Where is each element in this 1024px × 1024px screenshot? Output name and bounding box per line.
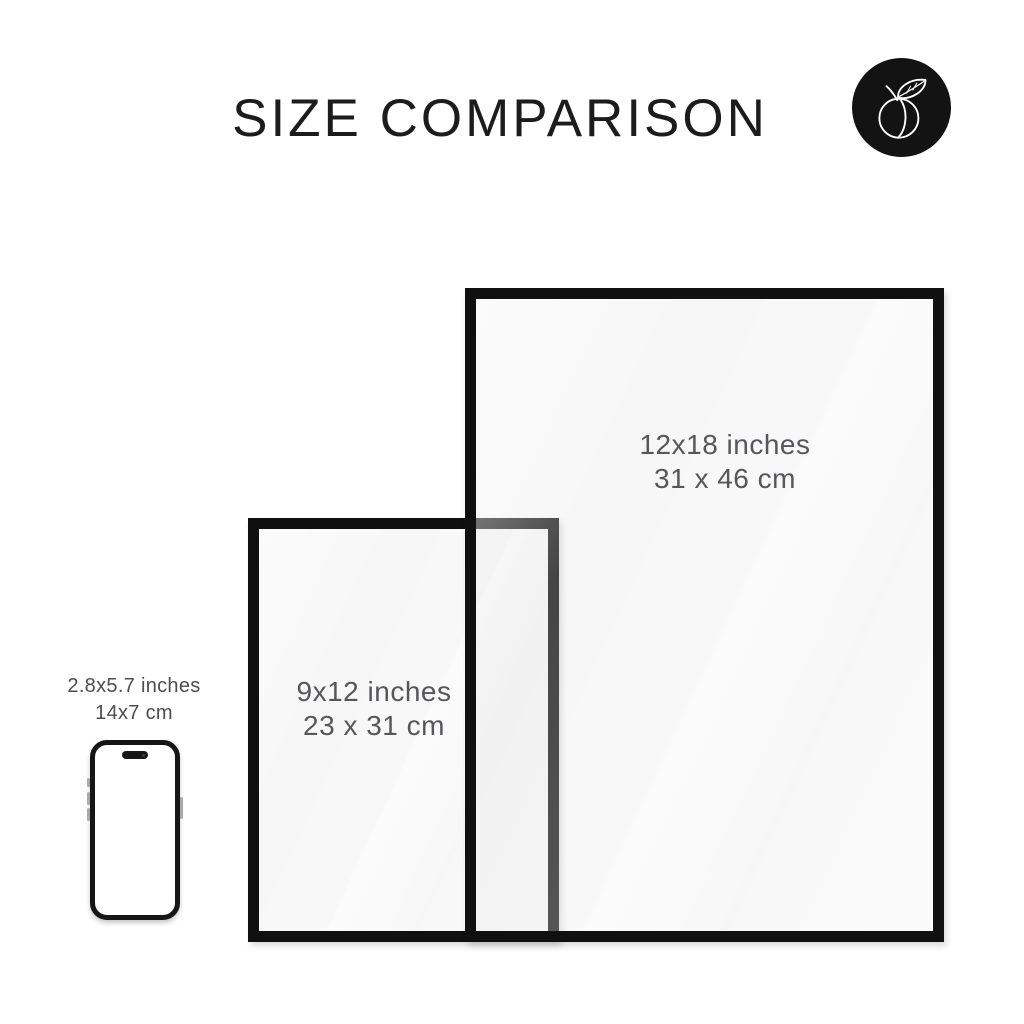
- frame-12x18-cm: 31 x 46 cm: [615, 462, 835, 496]
- volume-up-button: [87, 792, 90, 805]
- frame-9x12-cm: 23 x 31 cm: [264, 709, 484, 743]
- frame-12x18-inches: 12x18 inches: [615, 428, 835, 462]
- phone-cm: 14x7 cm: [34, 700, 234, 727]
- size-comparison-infographic: SIZE COMPARISON 12x18 inches 31 x 46 cm …: [0, 0, 1024, 1024]
- frame-9x12-label: 9x12 inches 23 x 31 cm: [264, 675, 484, 743]
- brand-badge: [852, 58, 951, 157]
- frame-12x18: [465, 288, 944, 942]
- volume-down-button: [87, 808, 90, 821]
- page-title: SIZE COMPARISON: [232, 88, 768, 149]
- phone-label: 2.8x5.7 inches 14x7 cm: [34, 673, 234, 727]
- mute-switch: [87, 778, 90, 787]
- power-button: [180, 797, 183, 819]
- camera-dot: [142, 754, 145, 757]
- frame-12x18-label: 12x18 inches 31 x 46 cm: [615, 428, 835, 496]
- peach-icon: [863, 69, 941, 147]
- frame-9x12-inches: 9x12 inches: [264, 675, 484, 709]
- phone-inches: 2.8x5.7 inches: [34, 673, 234, 700]
- dynamic-island: [122, 751, 148, 759]
- phone-illustration: [90, 740, 180, 920]
